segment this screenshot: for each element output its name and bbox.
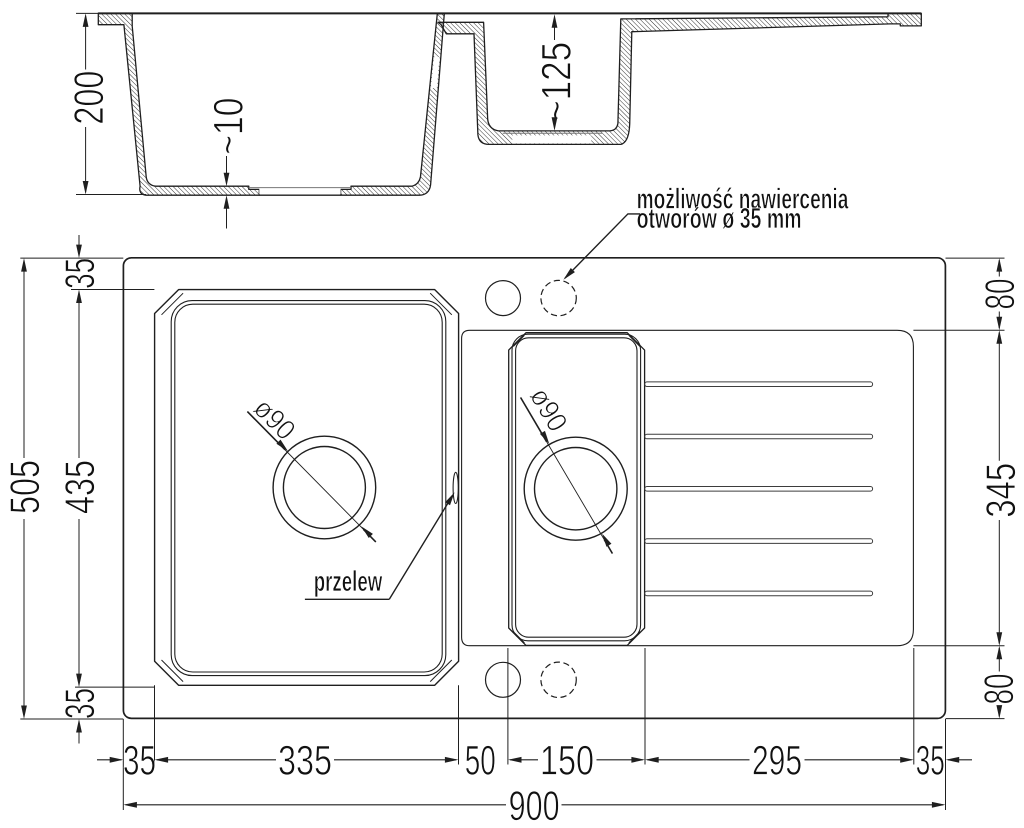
svg-text:335: 335 [278,737,332,784]
svg-text:35: 35 [123,737,156,784]
svg-text:505: 505 [1,460,48,514]
svg-text:435: 435 [56,460,103,514]
svg-text:345: 345 [977,463,1024,518]
svg-text:295: 295 [752,737,802,784]
svg-text:otworów ø 35 mm: otworów ø 35 mm [637,203,802,235]
svg-text:900: 900 [509,782,560,828]
svg-text:200: 200 [65,71,112,125]
svg-text:35: 35 [56,688,103,719]
svg-text:~125: ~125 [533,42,580,121]
svg-text:przelew: przelew [314,566,383,598]
svg-text:35: 35 [916,737,945,784]
svg-text:80: 80 [975,674,1022,705]
svg-text:~10: ~10 [205,98,252,155]
svg-text:150: 150 [540,737,594,784]
svg-text:80: 80 [976,279,1023,310]
svg-text:50: 50 [465,737,496,784]
svg-text:35: 35 [56,258,103,289]
